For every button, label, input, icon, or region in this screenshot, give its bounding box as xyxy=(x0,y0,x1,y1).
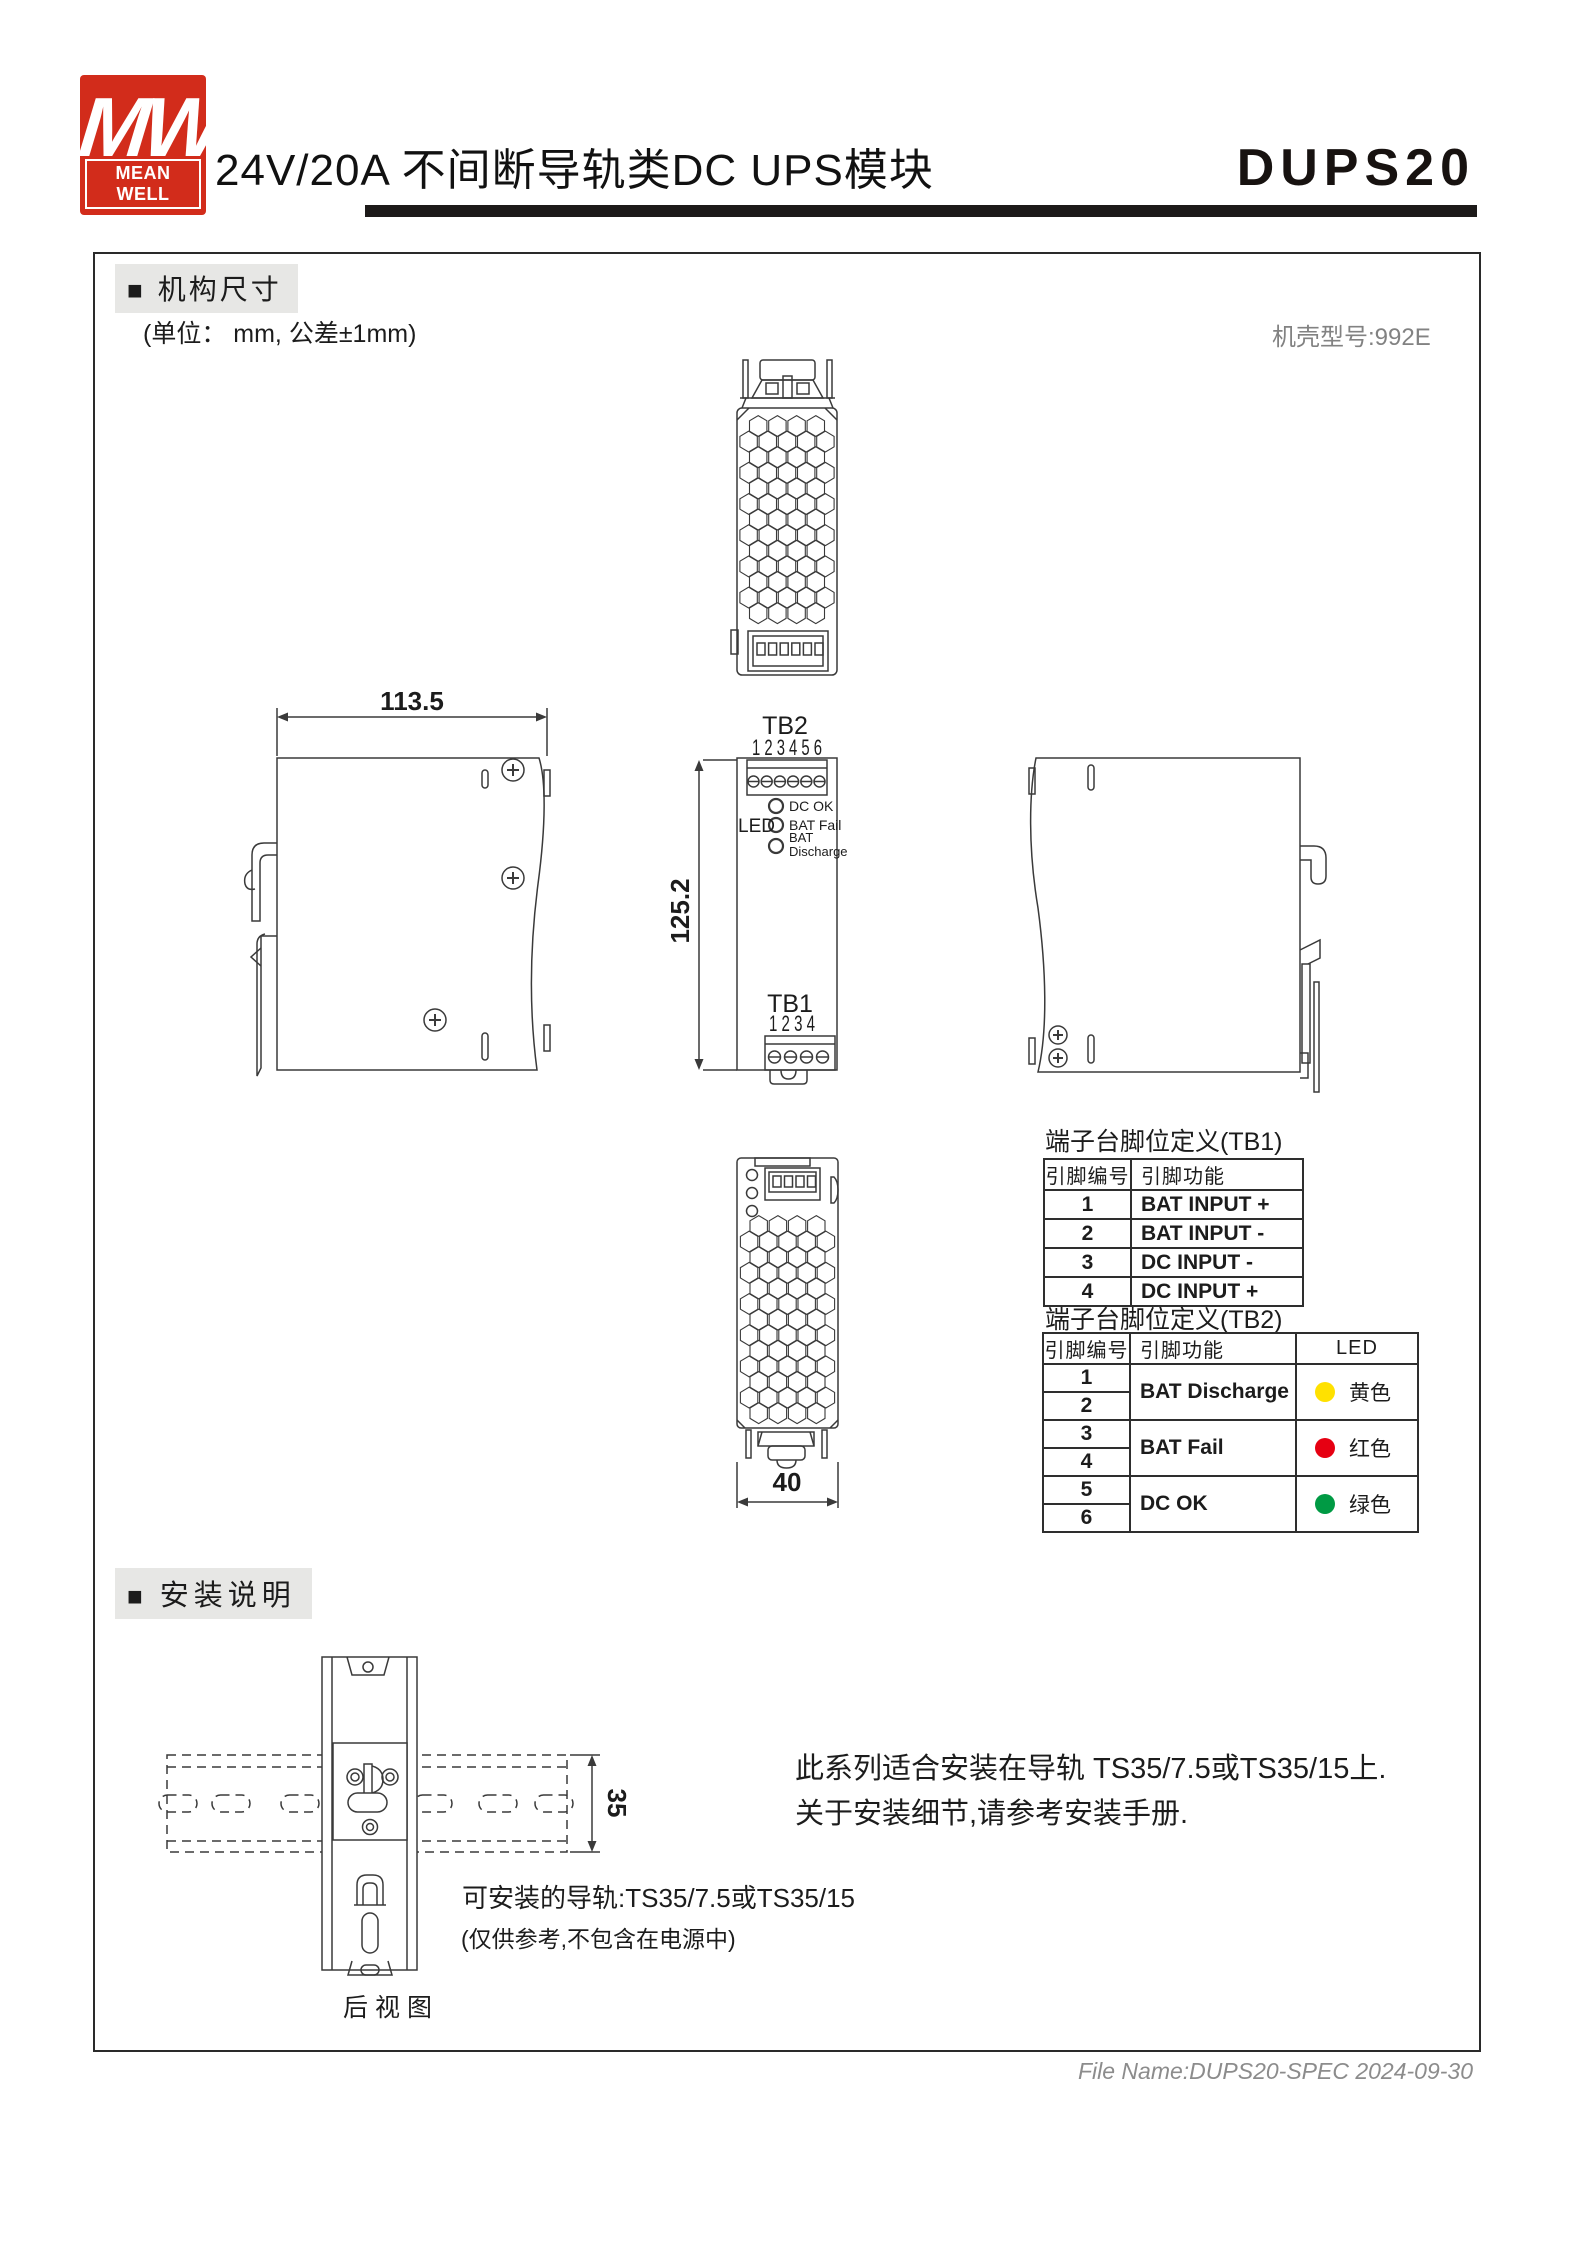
led-indicator-red: 红色 xyxy=(1297,1433,1417,1463)
meanwell-brand-label: MEAN WELL xyxy=(85,159,201,209)
led-indicator-green: 绿色 xyxy=(1297,1489,1417,1519)
tb2-table-title: 端子台脚位定义(TB2) xyxy=(1045,1300,1283,1336)
tb1-col-func: 引脚功能 xyxy=(1131,1159,1303,1190)
dim-depth-label: 40 xyxy=(773,1467,802,1497)
dim-width-label: 113.5 xyxy=(380,686,444,716)
led-group-label: LED xyxy=(738,816,775,837)
tb2-pin-numbers: 1 2 3 4 5 6 xyxy=(752,735,822,760)
led-batdischarge-label-1: BAT xyxy=(789,830,813,845)
led-dot-icon xyxy=(1314,1437,1336,1459)
model-number: DUPS20 xyxy=(1180,142,1475,194)
led-indicator-yellow: 黄色 xyxy=(1297,1377,1417,1407)
tb1-pin-table: 引脚编号 引脚功能 1BAT INPUT + 2BAT INPUT - 3DC … xyxy=(1043,1158,1304,1307)
section-bullet-icon: ■ xyxy=(127,275,146,305)
tb2-col-pin: 引脚编号 xyxy=(1043,1333,1130,1364)
footer-file-info: File Name:DUPS20-SPEC 2024-09-30 xyxy=(1078,2058,1473,2085)
table-row: 5 DC OK 绿色 xyxy=(1043,1476,1418,1504)
led-batdischarge-label-2: Discharge xyxy=(789,844,848,859)
install-desc-line1: 此系列适合安装在导轨 TS35/7.5或TS35/15上. xyxy=(795,1745,1386,1787)
table-row: 1BAT INPUT + xyxy=(1044,1190,1303,1219)
tb2-col-func: 引脚功能 xyxy=(1130,1333,1296,1364)
dim-rail-label: 35 xyxy=(602,1789,632,1818)
tb2-col-led: LED xyxy=(1296,1333,1418,1364)
led-dcok-label: DC OK xyxy=(789,798,834,814)
dim-height-label: 125.2 xyxy=(665,878,695,943)
honeycomb-vent-top xyxy=(740,416,834,624)
honeycomb-vent-bottom xyxy=(740,1216,834,1424)
rail-note-line2: (仅供参考,不包含在电源中) xyxy=(461,1920,736,1954)
table-header-row: 引脚编号 引脚功能 LED xyxy=(1043,1333,1418,1364)
tb1-pin-numbers: 1 2 3 4 xyxy=(769,1011,815,1036)
table-row: 1 BAT Discharge 黄色 xyxy=(1043,1364,1418,1392)
case-model-note: 机壳型号:992E xyxy=(1272,317,1431,352)
tb1-table-title: 端子台脚位定义(TB1) xyxy=(1045,1122,1283,1158)
front-view-drawing: TB2 1 2 3 4 5 6 LED DC OK BAT Fail BAT D… xyxy=(650,688,865,1100)
tb1-col-pin: 引脚编号 xyxy=(1044,1159,1131,1190)
rear-view-install-drawing: 35 xyxy=(140,1645,632,2023)
table-row: 3 BAT Fail 红色 xyxy=(1043,1420,1418,1448)
section-install-heading: ■安装说明 xyxy=(115,1568,312,1619)
header-rule xyxy=(365,205,1477,217)
table-row: 2BAT INPUT - xyxy=(1044,1219,1303,1248)
rail-note-line1: 可安装的导轨:TS35/7.5或TS35/15 xyxy=(462,1878,855,1915)
rear-view-caption: 后视图 xyxy=(343,1988,439,2024)
table-header-row: 引脚编号 引脚功能 xyxy=(1044,1159,1303,1190)
table-row: 3DC INPUT - xyxy=(1044,1248,1303,1277)
tb2-pin-table: 引脚编号 引脚功能 LED 1 BAT Discharge 黄色 2 3 BAT… xyxy=(1042,1332,1419,1533)
install-desc-line2: 关于安装细节,请参考安装手册. xyxy=(795,1790,1188,1832)
side-view-left-drawing: 113.5 xyxy=(228,678,578,1080)
unit-note: (单位： mm, 公差±1mm) xyxy=(143,314,416,350)
datasheet-page: MW MEAN WELL 24V/20A 不间断导轨类DC UPS模块 DUPS… xyxy=(0,0,1587,2245)
page-title: 24V/20A 不间断导轨类DC UPS模块 xyxy=(215,134,934,198)
top-view-drawing xyxy=(700,352,875,684)
side-view-right-drawing xyxy=(1008,738,1343,1094)
meanwell-logo: MW MEAN WELL xyxy=(80,75,206,215)
led-dot-icon xyxy=(1314,1493,1336,1515)
bottom-view-drawing: 40 xyxy=(728,1150,858,1512)
led-dot-icon xyxy=(1314,1381,1336,1403)
section-bullet-icon: ■ xyxy=(127,1581,148,1611)
section-mechanical-heading: ■机构尺寸 xyxy=(115,264,298,313)
